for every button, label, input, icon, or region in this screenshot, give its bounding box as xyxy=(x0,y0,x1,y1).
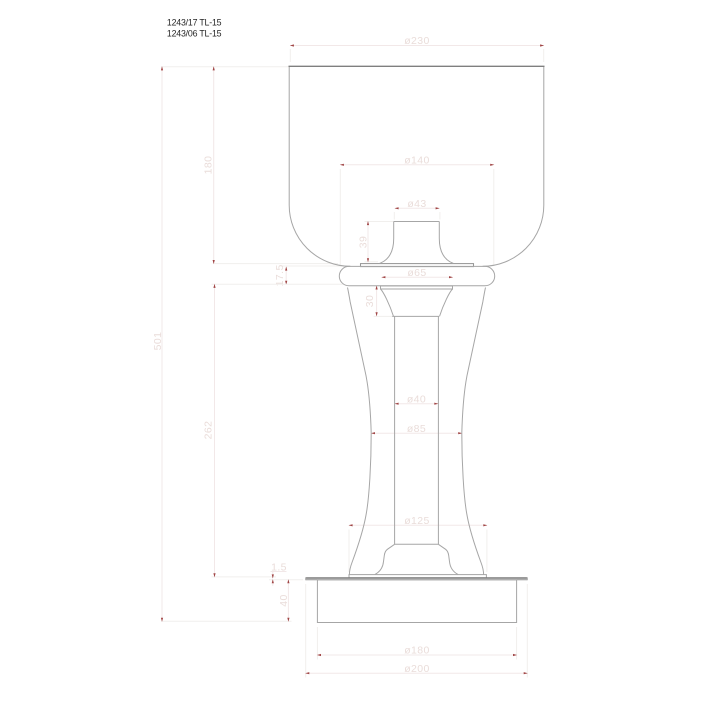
svg-text:ø125: ø125 xyxy=(404,515,430,527)
svg-text:501: 501 xyxy=(152,332,164,351)
svg-text:ø85: ø85 xyxy=(407,423,426,435)
svg-text:30: 30 xyxy=(364,295,376,307)
svg-text:40: 40 xyxy=(278,594,290,606)
svg-text:1243/17 TL-15: 1243/17 TL-15 xyxy=(167,18,222,28)
svg-text:17.5: 17.5 xyxy=(274,264,286,286)
svg-text:ø65: ø65 xyxy=(407,267,426,279)
svg-text:39: 39 xyxy=(357,236,369,248)
svg-text:ø140: ø140 xyxy=(404,154,430,166)
svg-text:ø43: ø43 xyxy=(407,198,426,210)
svg-text:ø200: ø200 xyxy=(404,663,430,675)
svg-text:ø40: ø40 xyxy=(407,393,426,405)
svg-text:262: 262 xyxy=(203,421,215,440)
svg-text:ø180: ø180 xyxy=(404,645,430,657)
svg-text:ø230: ø230 xyxy=(404,35,430,47)
svg-text:1243/06 TL-15: 1243/06 TL-15 xyxy=(167,28,222,38)
svg-text:180: 180 xyxy=(203,156,215,175)
svg-text:1.5: 1.5 xyxy=(271,562,287,574)
